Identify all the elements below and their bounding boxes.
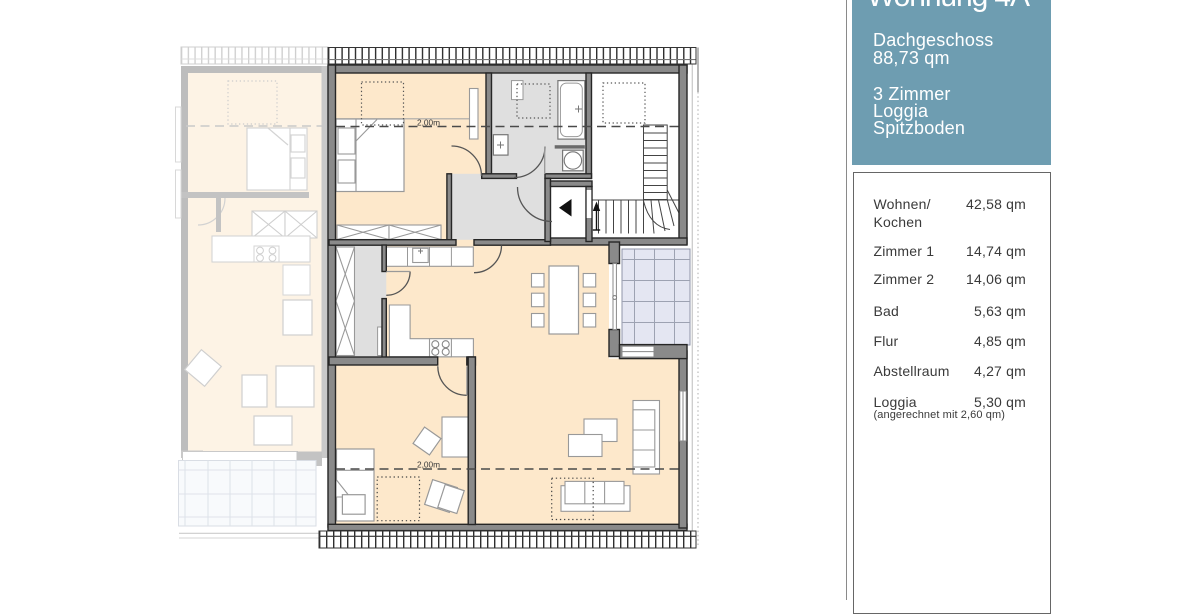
svg-text:2,00m: 2,00m (417, 118, 440, 128)
svg-text:2,00m: 2,00m (417, 460, 440, 470)
